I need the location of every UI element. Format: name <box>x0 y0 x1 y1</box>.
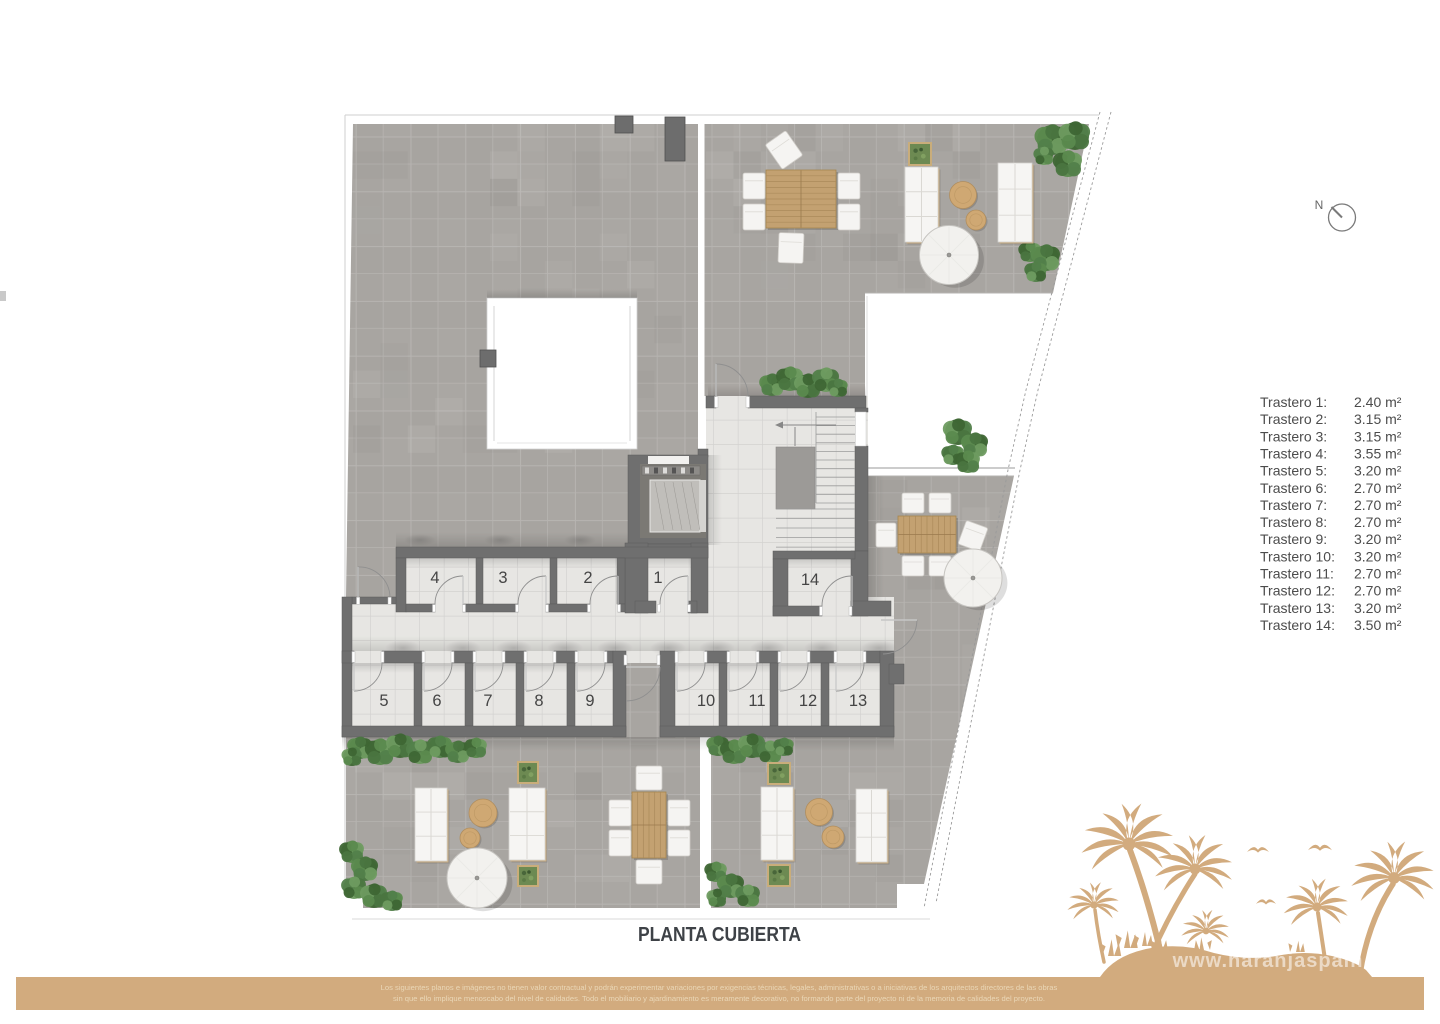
svg-text:3: 3 <box>498 569 507 587</box>
svg-text:Trastero 14:: Trastero 14: <box>1260 617 1335 633</box>
svg-text:6: 6 <box>432 692 441 710</box>
svg-text:1: 1 <box>653 569 662 587</box>
svg-text:Trastero 10:: Trastero 10: <box>1260 548 1335 564</box>
svg-text:5: 5 <box>379 692 388 710</box>
svg-text:sin que ello implique menoscab: sin que ello implique menoscabo del nive… <box>393 994 1045 1003</box>
svg-text:Trastero 1:: Trastero 1: <box>1260 394 1327 410</box>
svg-text:2.70 m²: 2.70 m² <box>1354 480 1402 496</box>
svg-text:Trastero 2:: Trastero 2: <box>1260 411 1327 427</box>
svg-text:3.20 m²: 3.20 m² <box>1354 600 1402 616</box>
svg-text:10: 10 <box>697 692 715 710</box>
svg-text:14: 14 <box>801 571 819 589</box>
svg-text:13: 13 <box>849 692 867 710</box>
svg-text:N: N <box>1315 198 1324 212</box>
svg-text:4: 4 <box>430 569 439 587</box>
svg-text:www.naranjaspain: www.naranjaspain <box>1172 950 1364 972</box>
svg-text:2.40 m²: 2.40 m² <box>1354 394 1402 410</box>
svg-text:7: 7 <box>483 692 492 710</box>
svg-text:Trastero 13:: Trastero 13: <box>1260 600 1335 616</box>
svg-text:3.55 m²: 3.55 m² <box>1354 445 1402 461</box>
svg-text:2.70 m²: 2.70 m² <box>1354 497 1402 513</box>
svg-text:Los siguientes planos e imágen: Los siguientes planos e imágenes no tien… <box>381 983 1058 992</box>
svg-text:3.15 m²: 3.15 m² <box>1354 428 1402 444</box>
svg-text:3.20 m²: 3.20 m² <box>1354 548 1402 564</box>
svg-text:2.70 m²: 2.70 m² <box>1354 514 1402 530</box>
svg-text:Trastero 3:: Trastero 3: <box>1260 428 1327 444</box>
svg-text:3.20 m²: 3.20 m² <box>1354 531 1402 547</box>
svg-text:3.20 m²: 3.20 m² <box>1354 463 1402 479</box>
svg-text:Trastero 9:: Trastero 9: <box>1260 531 1327 547</box>
svg-text:Trastero 6:: Trastero 6: <box>1260 480 1327 496</box>
svg-text:8: 8 <box>534 692 543 710</box>
svg-text:Trastero 11:: Trastero 11: <box>1260 566 1334 582</box>
svg-text:2.70 m²: 2.70 m² <box>1354 583 1402 599</box>
svg-text:Trastero 12:: Trastero 12: <box>1260 583 1335 599</box>
svg-text:Trastero 8:: Trastero 8: <box>1260 514 1327 530</box>
svg-text:PLANTA CUBIERTA: PLANTA CUBIERTA <box>638 924 801 946</box>
svg-text:Trastero 4:: Trastero 4: <box>1260 445 1327 461</box>
svg-text:3.15 m²: 3.15 m² <box>1354 411 1402 427</box>
svg-text:2: 2 <box>583 569 592 587</box>
svg-text:3.50 m²: 3.50 m² <box>1354 617 1402 633</box>
svg-text:2.70 m²: 2.70 m² <box>1354 566 1402 582</box>
svg-text:11: 11 <box>748 692 765 710</box>
svg-text:12: 12 <box>799 692 817 710</box>
svg-text:Trastero 7:: Trastero 7: <box>1260 497 1327 513</box>
svg-text:9: 9 <box>585 692 594 710</box>
svg-text:Trastero 5:: Trastero 5: <box>1260 463 1327 479</box>
